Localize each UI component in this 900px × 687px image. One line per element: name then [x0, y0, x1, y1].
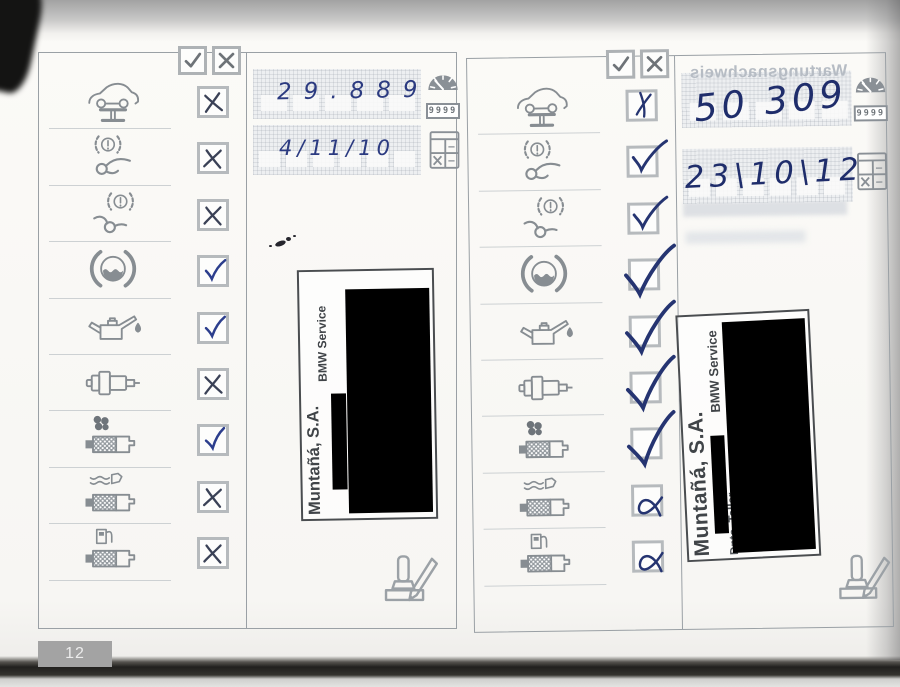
- checkbox-rear-brakes[interactable]: [627, 202, 659, 234]
- cross-icon: [644, 53, 665, 74]
- handwritten-mark: [622, 133, 671, 180]
- handwritten-date: 4/11/10: [279, 136, 395, 160]
- engine-filter-icon: [481, 473, 614, 529]
- service-row-front-brakes: [476, 133, 669, 192]
- service-item-rows: [47, 73, 239, 581]
- service-row-spark-plugs: [47, 355, 239, 411]
- engine-oil-icon: [47, 300, 179, 354]
- handwritten-mark: [632, 543, 668, 577]
- redaction-block: [722, 318, 816, 553]
- stamp-company: Muntañá, S.A.: [304, 406, 325, 515]
- brake-front-icon: [47, 130, 179, 184]
- calendar-icon: [429, 125, 460, 180]
- checkbox-brake-fluid[interactable]: [197, 255, 229, 287]
- spark-plug-icon: [479, 360, 612, 416]
- service-row-air-filter: [47, 411, 239, 467]
- cross-icon: [216, 50, 237, 71]
- handwritten-mark: [631, 486, 668, 521]
- handwritten-mark: [196, 422, 233, 459]
- handwritten-mark: [197, 537, 229, 569]
- service-row-front-brakes: [47, 129, 239, 185]
- stamp-brand: BMW Service: [704, 330, 723, 413]
- service-row-rear-brakes: [47, 186, 239, 242]
- legend-check-box: [178, 46, 207, 75]
- checkbox-engine-filter[interactable]: [197, 481, 229, 513]
- checkbox-engine-filter[interactable]: [631, 484, 663, 516]
- checkbox-spark-plugs[interactable]: [197, 368, 229, 400]
- engine-oil-icon: [478, 304, 611, 360]
- service-row-engine-oil: [478, 302, 671, 361]
- service-row-fuel-filter: [482, 527, 675, 586]
- service-row-air-filter: [480, 414, 673, 473]
- service-row-spark-plugs: [479, 358, 672, 417]
- handwritten-mark: [619, 242, 677, 302]
- brake-rear-icon: [477, 191, 610, 247]
- handwritten-mark: [618, 408, 682, 474]
- bleed-through-bar: [685, 230, 805, 244]
- service-row-engine-filter: [481, 471, 674, 530]
- checkbox-vehicle-on-lift[interactable]: [625, 89, 657, 121]
- redaction-block: [345, 288, 433, 513]
- handwritten-mark: [619, 297, 679, 359]
- digit-cell: [259, 151, 280, 167]
- service-row-rear-brakes: [477, 189, 670, 248]
- service-item-rows: [475, 76, 674, 586]
- checkbox-front-brakes[interactable]: [197, 142, 229, 174]
- brake-rear-icon: [47, 187, 179, 241]
- air-filter-icon: [480, 416, 613, 472]
- spark-plug-icon: [47, 356, 179, 410]
- handwritten-mileage: 29.889: [277, 77, 430, 106]
- dealer-stamp: Muntañá, S.A. BMW Service Dpto. Taller: [675, 309, 821, 562]
- service-row-fuel-filter: [47, 524, 239, 580]
- page-number: 12: [38, 641, 112, 667]
- check-icon: [610, 54, 631, 75]
- checkbox-air-filter[interactable]: [197, 424, 229, 456]
- handwritten-mark: [197, 142, 230, 175]
- mileage-field[interactable]: 29.889: [253, 69, 421, 119]
- checkbox-rear-brakes[interactable]: [197, 199, 229, 231]
- stamp-brand: BMW Service: [314, 306, 329, 382]
- fuel-filter-icon: [482, 529, 615, 585]
- odometer-icon: 9999: [426, 66, 460, 119]
- handwritten-mark: [197, 368, 229, 400]
- car-lift-icon: [475, 78, 608, 134]
- stamp-signature-icon: [835, 553, 894, 615]
- date-field[interactable]: 23\10\12: [682, 147, 853, 204]
- stamp-company: Muntañá, S.A.: [684, 411, 715, 557]
- service-record-left: 29.889 9999 4/11/10 Muntañá, S.A. BMW Se…: [38, 52, 457, 629]
- service-record-right: Wartungsnachweis 50 309 9999 23\10\12 Mu…: [466, 52, 894, 633]
- digit-cell: [394, 151, 415, 167]
- checkbox-engine-oil[interactable]: [629, 315, 661, 347]
- service-row-vehicle-on-lift: [475, 76, 668, 135]
- odometer-icon: 9999: [853, 68, 888, 121]
- brake-fluid-icon: [478, 247, 611, 303]
- odometer-digits: 9999: [426, 103, 460, 119]
- odometer-digits: 9999: [854, 105, 888, 121]
- ink-smudge: [275, 239, 305, 253]
- dealer-stamp: Muntañá, S.A. BMW Service: [297, 268, 438, 521]
- handwritten-mark: [197, 86, 230, 119]
- scanned-service-booklet-page: 29.889 9999 4/11/10 Muntañá, S.A. BMW Se…: [0, 0, 900, 687]
- fuel-filter-icon: [47, 525, 179, 579]
- air-filter-icon: [47, 412, 179, 466]
- service-row-engine-filter: [47, 468, 239, 524]
- handwritten-mark: [623, 190, 671, 236]
- handwritten-mark: [197, 254, 232, 289]
- checkbox-spark-plugs[interactable]: [629, 371, 661, 403]
- car-lift-icon: [47, 74, 179, 128]
- service-row-brake-fluid: [47, 242, 239, 298]
- service-row-brake-fluid: [478, 245, 671, 304]
- legend-cross-box: [640, 49, 669, 78]
- handwritten-mark: [197, 480, 230, 513]
- checkbox-brake-fluid[interactable]: [628, 258, 660, 290]
- checkbox-fuel-filter[interactable]: [632, 540, 664, 572]
- checkbox-vehicle-on-lift[interactable]: [197, 86, 229, 118]
- handwritten-mark: [619, 353, 681, 417]
- service-row-engine-oil: [47, 299, 239, 355]
- row-divider: [49, 580, 171, 581]
- brake-front-icon: [476, 134, 609, 190]
- check-icon: [182, 50, 203, 71]
- date-field[interactable]: 4/11/10: [253, 125, 421, 175]
- checkbox-front-brakes[interactable]: [626, 146, 658, 178]
- record-fields-right: Wartungsnachweis 50 309 9999 23\10\12 Mu…: [674, 53, 893, 629]
- checkbox-air-filter[interactable]: [630, 428, 662, 460]
- stamp-signature-icon: [381, 554, 441, 617]
- engine-filter-icon: [47, 469, 179, 523]
- handwritten-mark: [197, 310, 232, 345]
- legend-check-box: [606, 50, 635, 79]
- checkbox-fuel-filter[interactable]: [197, 537, 229, 569]
- legend-cross-box: [212, 46, 241, 75]
- brake-fluid-icon: [47, 243, 179, 297]
- record-fields-left: 29.889 9999 4/11/10 Muntañá, S.A. BMW Se…: [246, 53, 456, 628]
- service-row-vehicle-on-lift: [47, 73, 239, 129]
- handwritten-mark: [197, 199, 229, 231]
- checkbox-engine-oil[interactable]: [197, 312, 229, 344]
- handwritten-mark: [627, 86, 663, 124]
- redaction-block: [331, 393, 348, 489]
